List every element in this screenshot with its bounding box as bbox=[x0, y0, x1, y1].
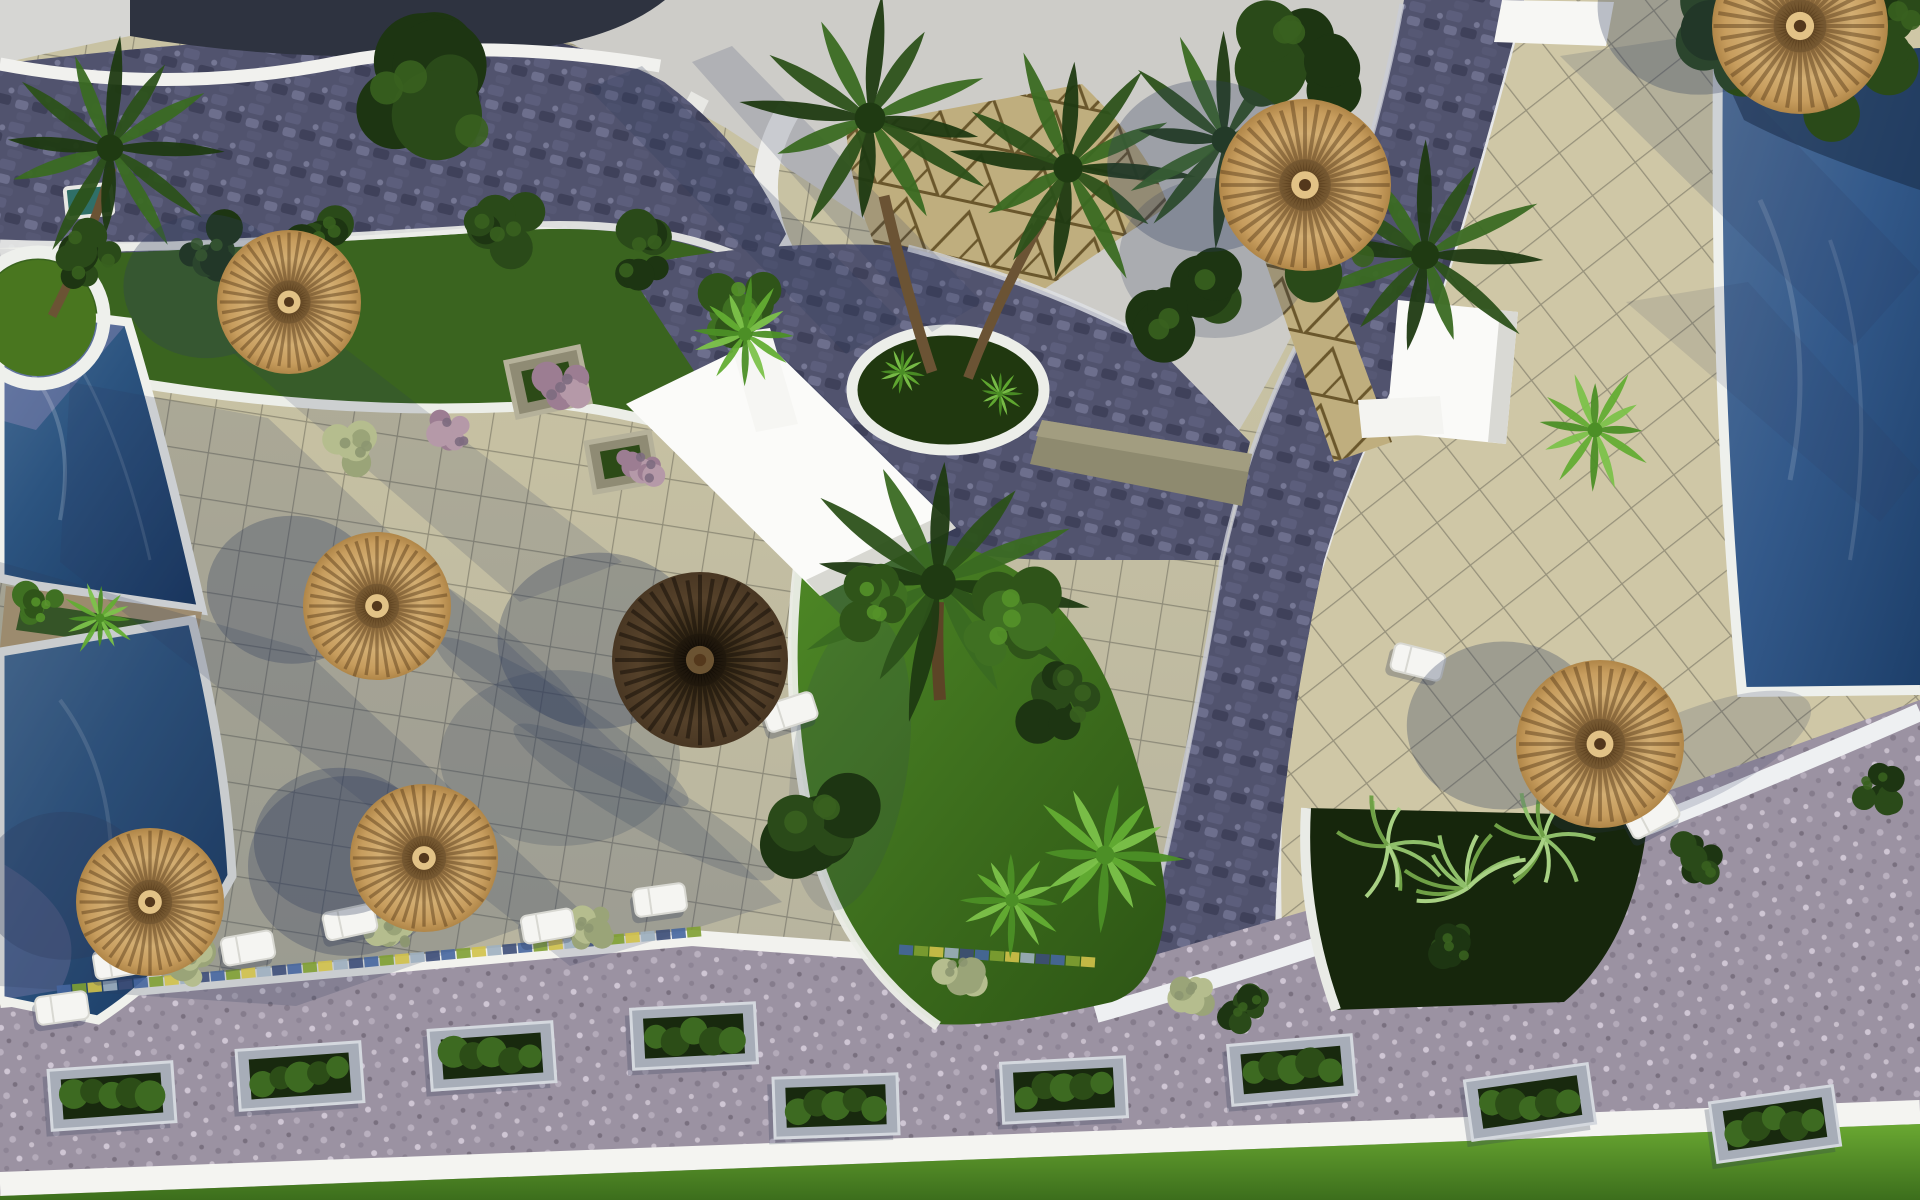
mosaic-tile bbox=[899, 945, 914, 956]
bush-highlight bbox=[546, 389, 557, 400]
bush-highlight bbox=[555, 382, 566, 393]
bush-highlight bbox=[945, 967, 954, 976]
bush-highlight bbox=[506, 221, 521, 236]
road-planter-box bbox=[230, 1042, 364, 1117]
mosaic-tile bbox=[302, 962, 317, 973]
bush-highlight bbox=[101, 254, 115, 268]
palm-crown bbox=[95, 613, 104, 622]
bush-highlight bbox=[1195, 269, 1216, 290]
canopy-pole bbox=[694, 654, 706, 666]
bush-clump bbox=[450, 416, 469, 435]
lounger-bed bbox=[632, 883, 687, 918]
mosaic-tile bbox=[149, 976, 164, 987]
palm-crown bbox=[1411, 241, 1439, 269]
bush-highlight bbox=[989, 627, 1007, 645]
mosaic-tile bbox=[456, 948, 471, 959]
bush-highlight bbox=[355, 447, 366, 458]
mosaic-tile bbox=[914, 946, 929, 957]
canopy-pole bbox=[1299, 179, 1311, 191]
lounger-bed bbox=[34, 991, 89, 1026]
road-planter-box bbox=[625, 1003, 758, 1076]
bush-highlight bbox=[1442, 933, 1452, 943]
bush-highlight bbox=[370, 71, 403, 104]
bush-highlight bbox=[400, 935, 410, 945]
bush-highlight bbox=[1186, 986, 1195, 995]
mosaic-tile bbox=[272, 965, 287, 976]
bush-highlight bbox=[619, 263, 633, 277]
shrub bbox=[1167, 976, 1214, 1015]
bush-highlight bbox=[860, 582, 874, 596]
mosaic-tile bbox=[287, 963, 302, 974]
mosaic-tile bbox=[318, 960, 333, 971]
bush-clump bbox=[966, 970, 983, 987]
bush-highlight bbox=[632, 237, 646, 251]
bush-highlight bbox=[1459, 950, 1469, 960]
bush-highlight bbox=[455, 114, 488, 147]
road-planter-box bbox=[42, 1062, 176, 1137]
bush-highlight bbox=[1148, 319, 1169, 340]
bush-highlight bbox=[442, 418, 451, 427]
palm-crown bbox=[899, 369, 905, 375]
bush-clump bbox=[1670, 831, 1696, 857]
mosaic-tile bbox=[425, 950, 440, 961]
mosaic-tile bbox=[210, 970, 225, 981]
mosaic-tile bbox=[487, 945, 502, 956]
bush-highlight bbox=[784, 811, 807, 834]
bush-highlight bbox=[474, 214, 489, 229]
canopy-pole bbox=[372, 601, 382, 611]
palm-crown bbox=[1588, 423, 1603, 438]
mosaic-tile bbox=[1020, 953, 1035, 964]
mosaic-tile bbox=[671, 928, 686, 939]
bush-highlight bbox=[731, 282, 745, 296]
mosaic-tile bbox=[625, 932, 640, 943]
mosaic-tile bbox=[656, 929, 671, 940]
mosaic-tile bbox=[1066, 956, 1081, 967]
mosaic-tile bbox=[1050, 955, 1065, 966]
bush-highlight bbox=[647, 235, 661, 249]
bush-highlight bbox=[1863, 781, 1872, 790]
palm-crown bbox=[855, 103, 886, 134]
mosaic-tile bbox=[990, 951, 1005, 962]
bush-highlight bbox=[1070, 706, 1087, 723]
mosaic-tile bbox=[1005, 952, 1020, 963]
palm-crown bbox=[1005, 893, 1018, 906]
palm-crown bbox=[1053, 153, 1082, 182]
mosaic-tile bbox=[410, 952, 425, 963]
canopy-pole bbox=[1794, 20, 1806, 32]
bush-highlight bbox=[41, 600, 50, 609]
mosaic-tile bbox=[1081, 957, 1096, 968]
bush-highlight bbox=[1705, 867, 1715, 877]
bush-highlight bbox=[1878, 772, 1887, 781]
bush-highlight bbox=[645, 473, 654, 482]
mosaic-tile bbox=[471, 946, 486, 957]
bush-highlight bbox=[68, 231, 82, 245]
bush-highlight bbox=[958, 958, 967, 967]
bush-highlight bbox=[459, 436, 468, 445]
bush-highlight bbox=[1003, 610, 1021, 628]
palm-crown bbox=[1096, 846, 1115, 865]
mosaic-tile bbox=[333, 959, 348, 970]
bush-highlight bbox=[1252, 995, 1261, 1004]
mosaic-tile bbox=[256, 966, 271, 977]
mosaic-tile bbox=[379, 955, 394, 966]
mosaic-tile bbox=[1035, 954, 1050, 965]
bush-highlight bbox=[1057, 670, 1074, 687]
palm-crown bbox=[920, 564, 956, 600]
canopy-pole bbox=[1594, 738, 1606, 750]
bush-highlight bbox=[646, 460, 655, 469]
mosaic-tile bbox=[687, 926, 702, 937]
bush-highlight bbox=[490, 227, 505, 242]
palm-crown bbox=[738, 327, 751, 340]
bush-highlight bbox=[1074, 685, 1091, 702]
mosaic-tile bbox=[364, 956, 379, 967]
bush-highlight bbox=[340, 438, 351, 449]
road-planter-box bbox=[422, 1022, 556, 1097]
road-planter-box bbox=[995, 1057, 1128, 1130]
bush-highlight bbox=[1233, 1007, 1242, 1016]
bush-highlight bbox=[872, 607, 886, 621]
mosaic-tile bbox=[395, 953, 410, 964]
bush-highlight bbox=[1002, 589, 1020, 607]
mosaic-tile bbox=[441, 949, 456, 960]
mosaic-tile bbox=[349, 958, 364, 969]
mosaic-tile bbox=[640, 931, 655, 942]
canopy-pole bbox=[145, 897, 155, 907]
bush-highlight bbox=[31, 597, 40, 606]
road-planter-box bbox=[767, 1074, 899, 1144]
bush-highlight bbox=[72, 266, 86, 280]
bush-highlight bbox=[323, 216, 336, 229]
road-planter-box bbox=[1222, 1035, 1357, 1112]
bush-clump bbox=[1304, 35, 1356, 87]
canopy-pole bbox=[284, 297, 294, 307]
bush-highlight bbox=[36, 613, 45, 622]
bush-clump bbox=[1852, 786, 1876, 810]
bush-highlight bbox=[1174, 991, 1183, 1000]
bush-highlight bbox=[584, 923, 593, 932]
mosaic-tile bbox=[929, 947, 944, 958]
bush-highlight bbox=[636, 452, 645, 461]
mosaic-tile bbox=[502, 943, 517, 954]
bush-highlight bbox=[817, 797, 840, 820]
canopy-pole bbox=[419, 853, 429, 863]
palm-crown bbox=[97, 135, 124, 162]
palm-crown bbox=[997, 391, 1003, 397]
render-canvas bbox=[0, 0, 1920, 1200]
bush-highlight bbox=[1273, 20, 1297, 44]
mosaic-tile bbox=[944, 948, 959, 959]
bush-highlight bbox=[577, 917, 586, 926]
aerial-resort-render bbox=[0, 0, 1920, 1200]
